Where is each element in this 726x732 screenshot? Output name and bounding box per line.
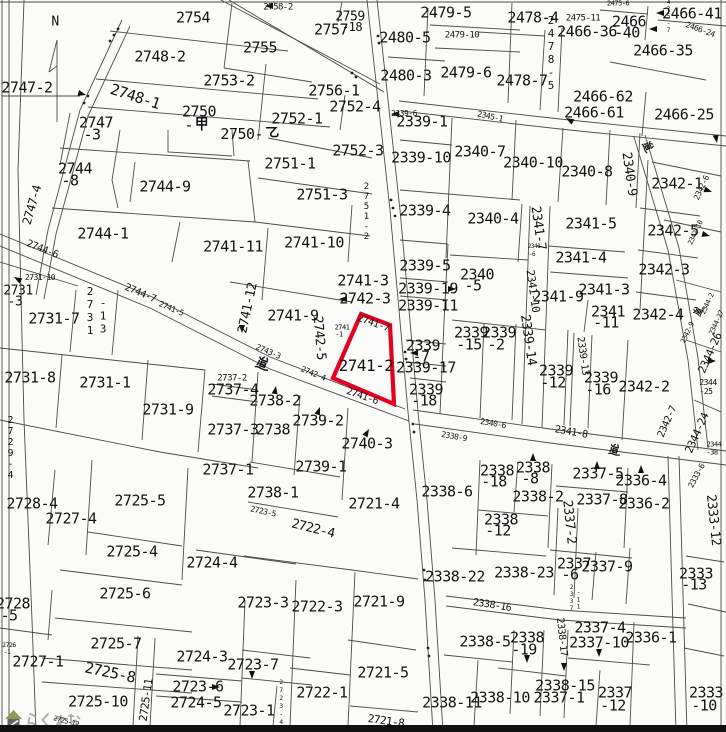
- parcel-label: 2748-2: [134, 50, 185, 65]
- parcel-label: 2466-25: [654, 108, 714, 123]
- parcel-label: 2339-1: [396, 115, 447, 130]
- road-kanji-label: [607, 442, 623, 458]
- parcel-label: -3: [8, 296, 23, 309]
- parcel-label: 2747-2: [1, 81, 52, 96]
- parcel-label: 2340-8: [561, 165, 612, 180]
- parcel-label: -18: [342, 21, 362, 33]
- parcel-label: 2756-1: [308, 84, 359, 99]
- parcel-label: 2338-5: [459, 635, 510, 650]
- parcel-label: 2724-3: [176, 650, 227, 665]
- parcel-label: -16: [585, 383, 611, 398]
- parcel-label: 2339-5: [399, 259, 450, 274]
- parcel-label: 2724-4: [186, 556, 237, 571]
- parcel-label: 2737-3: [207, 423, 258, 438]
- parcel-label: 2341-3: [578, 283, 629, 298]
- parcel-label: 2742-3: [339, 292, 390, 307]
- parcel-label: 2342-4: [632, 308, 683, 323]
- parcel-label: 2723-1: [223, 704, 274, 719]
- parcel-label: -10: [691, 699, 717, 714]
- parcel-label: 2738-2: [249, 394, 300, 409]
- parcel-label: 2758-2: [263, 4, 293, 13]
- parcel-label: 2478-7: [496, 74, 547, 89]
- parcel-label: 2336-2: [618, 497, 669, 512]
- parcel-label: 2754: [176, 11, 210, 26]
- parcel-label: 2725-7: [90, 637, 141, 652]
- parcel-label: 2339-10: [391, 151, 451, 166]
- parcel-label: 2340-4: [467, 212, 518, 227]
- parcel-label: 2741-11: [203, 240, 263, 255]
- parcel-label: 2342-3: [638, 263, 689, 278]
- parcel-label: 2339-11: [398, 299, 458, 314]
- parcel-label: 2337-10: [569, 636, 629, 651]
- parcel-label: 2344: [707, 442, 722, 449]
- parcel-label: 2723-3: [237, 596, 288, 611]
- parcel-label: 2751-2: [362, 182, 371, 242]
- parcel-label: 2752-1: [271, 112, 322, 127]
- parcel-label: -40: [614, 26, 640, 41]
- parcel-label: 2337: [568, 584, 574, 612]
- parcel-label: 2344: [699, 379, 716, 387]
- parcel-label: 2341-5: [565, 217, 616, 232]
- parcel-label: -12: [485, 524, 511, 539]
- parcel-label: 2741-10: [284, 236, 344, 251]
- parcel-label: 2725-5: [114, 494, 165, 509]
- parcel-label: 2338-22: [425, 570, 485, 585]
- parcel-label: -: [184, 115, 209, 133]
- parcel-label: -19: [511, 643, 537, 658]
- parcel-label: -15: [456, 338, 482, 353]
- parcel-label: 2466-62: [573, 90, 633, 105]
- parcel-label: 2731-9: [142, 403, 193, 418]
- parcel-label: 2723-7: [227, 658, 278, 673]
- parcel-label: -8: [521, 472, 538, 487]
- parcel-label: 2740-3: [341, 437, 392, 452]
- parcel-label: 2727-1: [12, 655, 63, 670]
- parcel-label: 2339-17: [396, 361, 456, 376]
- parcel-label: 2336-1: [625, 631, 676, 646]
- parcel-label: 2744-9: [139, 180, 190, 195]
- parcel-label: 2340-7: [454, 145, 505, 160]
- parcel-label: 2466-61: [564, 106, 624, 121]
- parcel-label: 2341-4: [555, 251, 606, 266]
- parcel-label: 2466-35: [633, 44, 693, 59]
- parcel-label: 2739-1: [295, 460, 346, 475]
- parcel-label: 2337-9: [581, 560, 632, 575]
- parcel-label: 2339-4: [399, 204, 450, 219]
- parcel-label: 2731-7: [28, 312, 79, 327]
- survey-dots: [83, 28, 431, 658]
- parcel-label: 2338-6: [421, 485, 472, 500]
- parcel-label: 2751-1: [264, 157, 315, 172]
- parcel-label: 2341: [528, 244, 540, 250]
- parcel-label: 2338-2: [512, 490, 563, 505]
- parcel-label: -13: [681, 578, 707, 593]
- compass-north-label: N: [51, 16, 58, 29]
- parcel-label: 2751-3: [296, 188, 347, 203]
- parcel-label: -1: [4, 649, 11, 656]
- parcel-label: -12: [540, 376, 566, 391]
- parcel-label: 2737-1: [202, 463, 253, 478]
- parcel-label: 2721-9: [353, 595, 404, 610]
- parcel-label: 2337-1: [533, 691, 584, 706]
- parcel-label: -3: [83, 128, 100, 143]
- parcel-label: 2339-19: [398, 282, 458, 297]
- parcel-label: 2731-10: [25, 274, 55, 282]
- parcel-label: 2738: [256, 423, 290, 438]
- parcel-label: 2722-1: [296, 686, 347, 701]
- parcel-label: 2338-23: [494, 566, 554, 581]
- parcel-label: 2480-5: [379, 31, 430, 46]
- parcel-label: 2729-4: [5, 415, 15, 481]
- parcel-label: -38: [706, 450, 717, 457]
- parcel-label: 2340-10: [503, 156, 563, 171]
- parcel-label: 2466-36: [557, 25, 617, 40]
- parcel-label: 2479-6: [440, 66, 491, 81]
- parcel-label: -18: [481, 475, 507, 490]
- parcel-label: 2752-4: [329, 100, 380, 115]
- parcel-label: 2480-3: [380, 69, 431, 84]
- parcel-label: -25: [700, 388, 713, 396]
- parcel-label: -12: [600, 699, 626, 714]
- parcel-label: 2723-4: [278, 678, 285, 726]
- parcel-label: 2722-3: [291, 600, 342, 615]
- parcel-label: 2723-6: [172, 680, 223, 695]
- parcel-label: 2744-1: [77, 227, 128, 242]
- parcel-label: 2731-8: [4, 371, 55, 386]
- parcel-label: 2475-7: [665, 0, 671, 34]
- parcel-label: 2731-1: [79, 376, 130, 391]
- parcel-label: 2755: [243, 41, 277, 56]
- parcel-label: -11: [575, 590, 581, 611]
- parcel-label: 2739-2: [292, 414, 343, 429]
- parcel-label: 2738-1: [247, 486, 298, 501]
- parcel-label: -18: [411, 394, 437, 409]
- parcel-label: 2725-6: [99, 587, 150, 602]
- parcel-label: -2: [487, 338, 504, 353]
- parcel-label: -13: [98, 297, 109, 336]
- parcel-label: -5: [0, 609, 17, 624]
- parcel-label: 2742-5: [311, 316, 328, 361]
- parcel-label: 2752-3: [332, 144, 383, 159]
- parcel-label: 2721-5: [357, 666, 408, 681]
- parcel-label: 2336-4: [615, 474, 666, 489]
- parcel-label: 2479-10: [445, 32, 479, 41]
- parcel-label: -11: [593, 316, 619, 331]
- map-bottom-border: [0, 725, 726, 732]
- parcel-label: 2725-4: [106, 545, 157, 560]
- parcel-label: 2741-3: [337, 274, 388, 289]
- parcel-label: 2725-10: [68, 695, 128, 710]
- parcel-label: 2731: [85, 285, 96, 337]
- parcel-label: 2741-2: [339, 358, 394, 374]
- parcel-label: -8: [61, 174, 78, 189]
- parcel-label: 2342-2: [618, 380, 669, 395]
- parcel-label: 2724-5: [170, 696, 221, 711]
- cadastral-map[interactable]: 2747-227542748-22758-227572759-182755275…: [0, 0, 726, 732]
- parcel-label: -6: [529, 252, 535, 258]
- parcel-label: 2475-6: [607, 1, 629, 8]
- parcel-label: -6: [561, 568, 578, 583]
- parcel-label: 2727-4: [45, 512, 96, 527]
- parcel-label: 2338-11: [422, 696, 482, 711]
- parcel-label: -1: [335, 332, 342, 339]
- parcel-label: 2479-5: [420, 6, 471, 21]
- parcel-label: -5: [464, 279, 481, 294]
- parcel-label: 2753-2: [203, 74, 254, 89]
- parcel-label: 2721-4: [348, 497, 399, 512]
